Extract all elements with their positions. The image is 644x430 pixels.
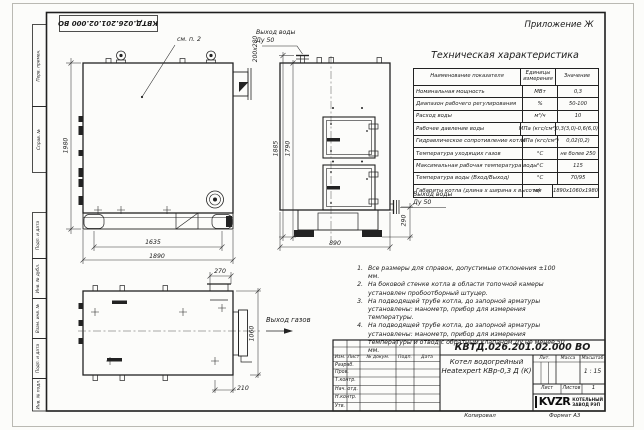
footer-format-label: Формат А3 <box>549 413 580 419</box>
titleblock-doc-number: КВТД.026.201.02.000 ВО <box>440 341 605 355</box>
kvzr-emblem-icon <box>535 396 537 408</box>
company-name: КОТЕЛЬНЫЙ ЗАВОД РЭП <box>572 397 603 408</box>
dim-plan-chimney-offset: 210 <box>237 385 249 392</box>
spec-col-units: Единицы измерения <box>521 69 556 85</box>
dim-side-height-total: 1885 <box>273 128 282 168</box>
dim-front-length: 1890 <box>137 253 177 260</box>
titleblock-lit-label: Лит. <box>533 356 556 361</box>
spec-col-value: Значение <box>556 69 598 85</box>
margin-stamp-inv-podl: Инв. № подл. <box>32 378 46 411</box>
titleblock-product-name: Котел водогрейный Heatexpert КВр-0,3 Д (… <box>441 358 532 375</box>
spec-table: Наименование показателя Единицы измерени… <box>413 68 599 198</box>
margin-stamp-podp-data-2: Подп. и дата <box>32 338 46 378</box>
spec-row: Номинальная мощностьМВт0,3 <box>414 85 598 97</box>
note-item: 1.Все размеры для справок, допустимые от… <box>352 265 604 281</box>
titleblock-scale-value: 1 : 15 <box>580 368 605 375</box>
titleblock-sheets-value: 1 <box>582 385 605 391</box>
water-outlet-dn: Ду 50 <box>413 199 452 207</box>
note-item: 3.На подводящей трубе котла, до запорной… <box>352 298 604 323</box>
see-note-callout: см. п. 2 <box>177 36 201 43</box>
titleblock-row-razrab: Разраб. <box>335 363 354 368</box>
dim-front-feet-span: 1635 <box>133 239 173 246</box>
spec-header-row: Наименование показателя Единицы измерени… <box>414 69 598 85</box>
titleblock-sheet-label: Лист <box>533 386 561 391</box>
spec-row: Рабочее давление водыМПа (кгс/см²)0,3(3,… <box>414 122 598 134</box>
dim-side-width: 890 <box>315 240 355 247</box>
titleblock-col-doc: № докум. <box>360 355 396 360</box>
appendix-label: Приложение Ж <box>519 20 599 30</box>
titleblock-col-date: Дата <box>414 355 440 360</box>
drawing-linework <box>0 0 644 430</box>
dim-side-pipe-height: 290 <box>401 200 410 240</box>
titleblock-row-utv: Утв. <box>335 404 345 409</box>
company-logo: KVZR КОТЕЛЬНЫЙ ЗАВОД РЭП <box>535 395 603 409</box>
top-doc-number: КВТД.026.201.02.000 ВО <box>58 19 158 27</box>
margin-stamp-perv-primen: Перв. примен. <box>32 24 46 106</box>
gas-outlet-callout: Выход газов <box>266 316 311 324</box>
titleblock-mass-label: Масса <box>556 356 580 361</box>
spec-row: Габариты котла (длина х ширина х высота)… <box>414 184 598 196</box>
spec-row: Максимальная рабочая температура воды°С1… <box>414 159 598 171</box>
titleblock-col-izm: Изм. <box>333 355 347 360</box>
dim-plan-depth: 1060 <box>249 313 258 353</box>
titleblock-sheets-label: Листов <box>561 386 582 391</box>
kvzr-logo-text: KVZR <box>539 396 570 408</box>
spec-row: Гидравлическое сопротивление котлаМПа (к… <box>414 135 598 147</box>
titleblock-col-sign: Подп. <box>396 355 414 360</box>
spec-row: Диапазон рабочего регулирования%50-100 <box>414 97 598 109</box>
titleblock-col-list: Лист <box>347 355 360 360</box>
titleblock-row-prov: Пров. <box>335 370 349 375</box>
spec-row: Температура воды (Вход/Выход)°С70/95 <box>414 172 598 184</box>
drawing-sheet: Перв. примен. Справ. № Подп. и дата Инв.… <box>0 0 644 430</box>
margin-stamp-podp-data-1: Подп. и дата <box>32 212 46 258</box>
titleblock-row-tkontr: Т.контр. <box>335 378 356 383</box>
footer-copied-label: Копировал <box>436 413 524 419</box>
spec-table-title: Техническая характеристика <box>413 50 597 61</box>
top-doc-number-box: КВТД.026.201.02.000 ВО <box>59 15 157 31</box>
dim-side-height-flange: 1790 <box>284 128 293 168</box>
dim-plan-chimney-width: 270 <box>200 268 240 275</box>
margin-stamp-sprav-no: Справ. № <box>32 106 46 172</box>
spec-row: Температура уходящих газов°Сне более 250 <box>414 147 598 159</box>
titleblock-row-nkontr: Н.контр. <box>335 395 356 400</box>
chimney-section-label: 200х280 <box>252 28 262 70</box>
spec-row: Расход водым³/ч10 <box>414 110 598 122</box>
dim-front-height: 1980 <box>63 125 72 165</box>
note-item: 2.На боковой стенке котла в области топо… <box>352 281 604 297</box>
spec-col-name: Наименование показателя <box>414 69 521 85</box>
margin-stamp-inv-dubl: Инв. № дубл. <box>32 258 46 298</box>
titleblock-row-nachotd: Нач. отд. <box>335 387 358 392</box>
titleblock-scale-label: Масштаб <box>580 356 605 361</box>
margin-stamp-vzam-inv: Взам. инв. № <box>32 298 46 338</box>
